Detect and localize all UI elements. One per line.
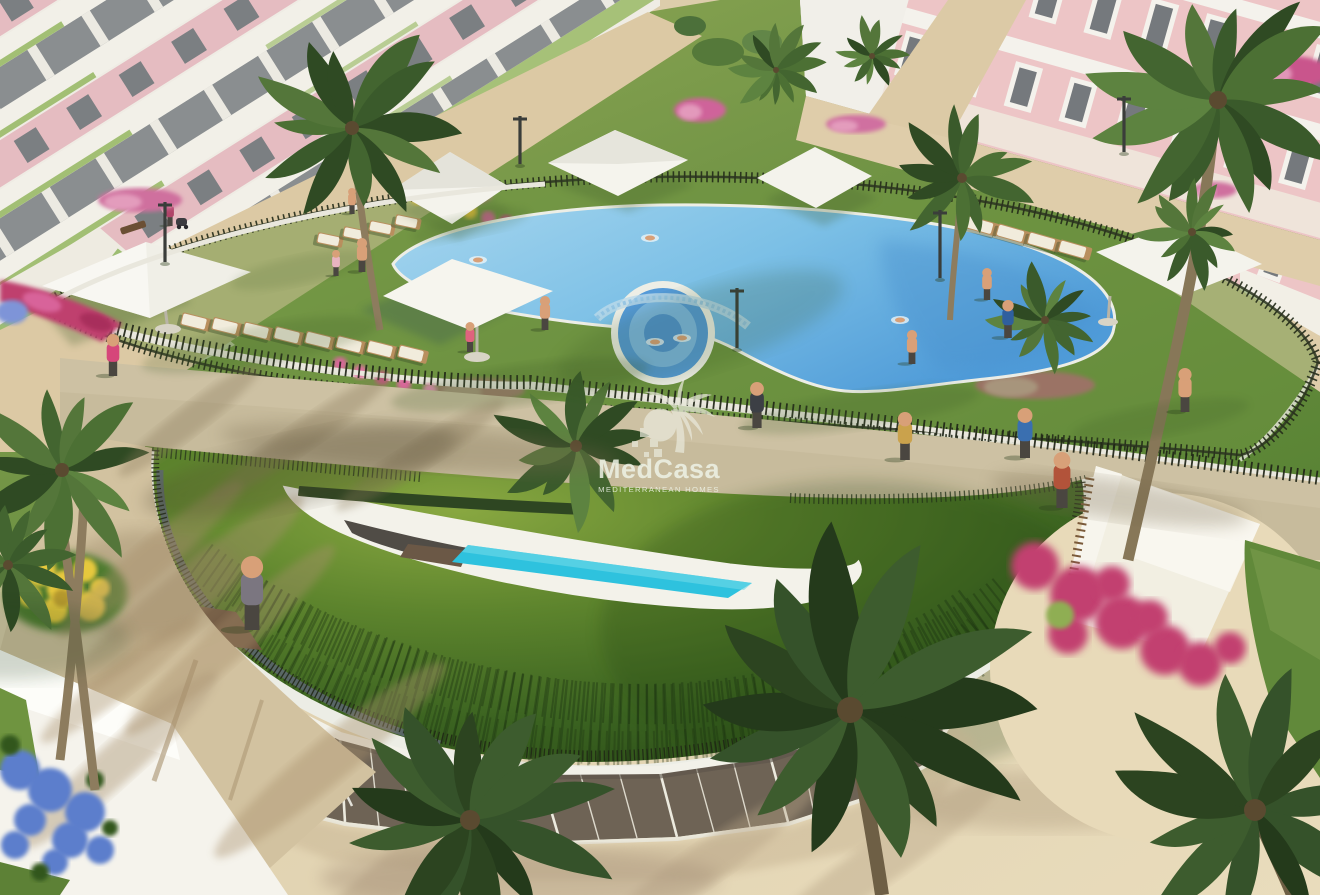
svg-text:MedCasa: MedCasa bbox=[598, 454, 721, 484]
svg-text:MEDITERRANEAN HOMES: MEDITERRANEAN HOMES bbox=[598, 485, 720, 494]
